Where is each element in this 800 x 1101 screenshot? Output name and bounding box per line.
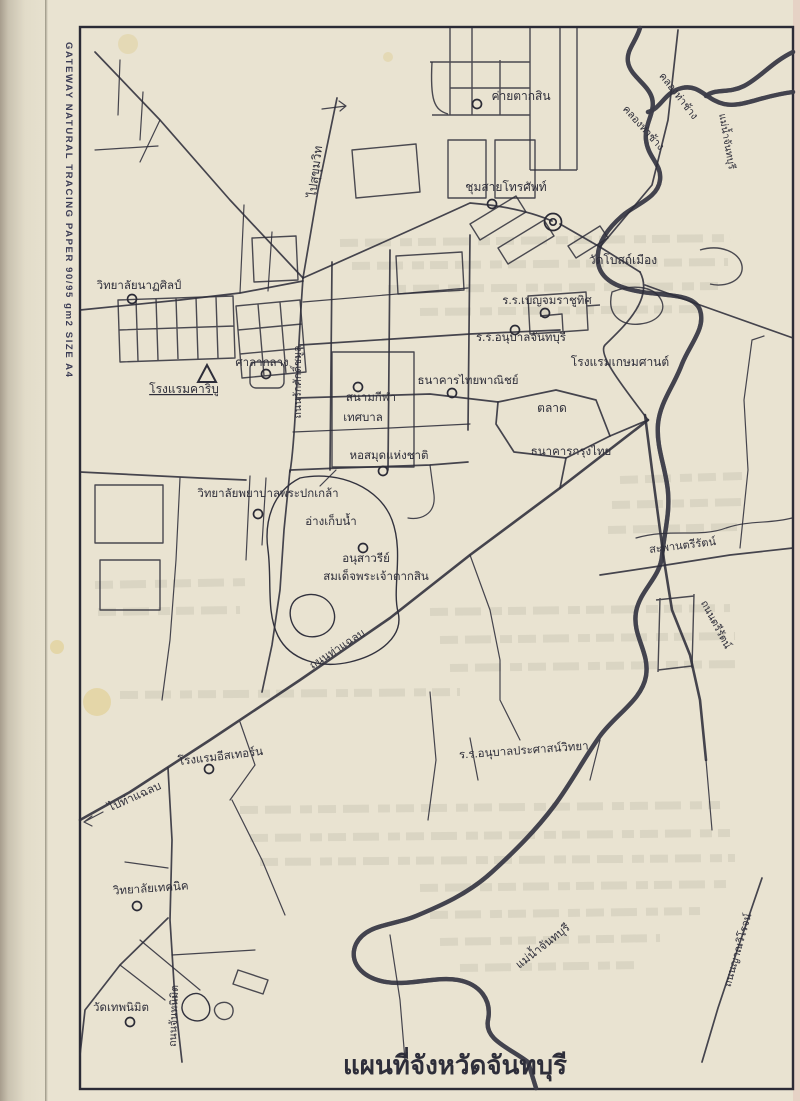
landmark-circle-marker (254, 510, 263, 519)
map-label-sanam-kila-line1: สนามกีฬา (346, 391, 396, 404)
map-label-thanakhan-krungthai: ธนาคารกรุงไทย (531, 445, 612, 458)
map-label-khlong-tha-chang-lower: คลองท่าช้าง (620, 103, 666, 153)
map-label-ho-samut-haeng-chat: หอสมุดแห่งชาติ (350, 449, 429, 462)
landmark-circle-marker (488, 200, 497, 209)
map-label-pai-sukhumvit: ไปสุขุมวิท (305, 145, 326, 199)
map-label-thanakhan-thai-phanit: ธนาคารไทยพาณิชย์ (417, 373, 518, 387)
map-label-witthayalai-natasin: วิทยาลัยนาฏศิลป์ (96, 278, 181, 292)
map-label-rongraem-eastern: โรงแรมอีสเทอร์น (177, 744, 264, 768)
landmark-circle-marker (359, 544, 368, 553)
map-label-rongraem-caribou: โรงแรมคาริบู (149, 382, 219, 397)
map-label-talat: ตลาด (537, 401, 567, 415)
map-label-wat-bot-mueang: วัดโบสถ์เมือง (589, 253, 657, 267)
city-blocks (95, 28, 742, 1019)
map-label-mae-nam-chanthaburi-upper: แม่น้ำจันทบุรี (716, 112, 740, 171)
map-label-thanon-yan-wirot: ถนนญาณวิโรจน์ (721, 912, 754, 989)
hotel-triangle-marker (198, 365, 216, 382)
map-label-thanon-tha-chalaep: ถนนท่าแฉลบ (307, 627, 367, 672)
map-label-rr-anuban-chanthaburi: ร.ร.อนุบาลจันทบุรี (476, 331, 566, 344)
landmark-circle-marker (133, 902, 142, 911)
map-label-anusawari-line1: อนุสาวรีย์ (342, 551, 390, 565)
map-label-pai-tha-chalaep: ไปท่าแฉลบ (105, 779, 163, 814)
landmark-circle-marker (262, 370, 271, 379)
roundabout-marker (545, 214, 562, 231)
map-label-anusawari-line2: สมเด็จพระเจ้าตากสิน (323, 568, 429, 583)
map-label-witthayalai-technic: วิทยาลัยเทคนิค (112, 879, 189, 897)
map-label-chumsai-thorasap: ชุมสายโทรศัพท์ (465, 180, 546, 195)
map-canvas: คลองท่าช้างคลองท่าช้างแม่น้ำจันทบุรีไปสุ… (0, 0, 800, 1101)
map-label-witthayalai-phayaban: วิทยาลัยพยาบาลพระปกเกล้า (197, 487, 339, 500)
landmark-circle-marker (354, 383, 363, 392)
landmark-circle-marker (126, 1018, 135, 1027)
map-label-ang-kep-nam: อ่างเก็บน้ำ (305, 513, 357, 528)
map-border (80, 27, 793, 1089)
landmark-circle-marker (473, 100, 482, 109)
map-label-sanam-kila-line2: เทศบาล (343, 412, 383, 424)
landmark-circle-marker (379, 467, 388, 476)
landmark-circle-marker (205, 765, 214, 774)
map-label-thanon-chan-nimit: ถนนจันทนิมิต (167, 985, 181, 1047)
map-label-rongraem-kasemsan: โรงแรมเกษมศานต์ (571, 355, 669, 369)
bleedthrough-text (95, 238, 742, 968)
roundabout-marker (550, 219, 556, 225)
map-label-map-title: แผนที่จังหวัดจันทบุรี (343, 1046, 567, 1082)
map-label-khlong-tha-chang-upper: คลองท่าช้าง (656, 70, 700, 121)
map-label-sala-klang: ศาลากลาง (235, 357, 288, 369)
map-label-wat-thep-nimit: วัดเทพนิมิต (93, 1001, 149, 1014)
map-label-khai-taksin: ค่ายตากสิน (491, 89, 550, 103)
map-label-rr-benchamarachuthit: ร.ร.เบญจมราชูทิศ (502, 294, 592, 307)
map-label-thanon-rak-sak-chamun: ถนนรักศักดิ์ชมูล (289, 345, 304, 418)
map-label-rr-anuban-prasat-witthaya: ร.ร.อนุบาลประศาสน์วิทยา (458, 738, 589, 761)
scanned-map-page: GATEWAY NATURAL TRACING PAPER 90/95 gm2 … (0, 0, 800, 1101)
map-label-saphan-trirat: สะพานตรีรัตน์ (648, 535, 717, 556)
